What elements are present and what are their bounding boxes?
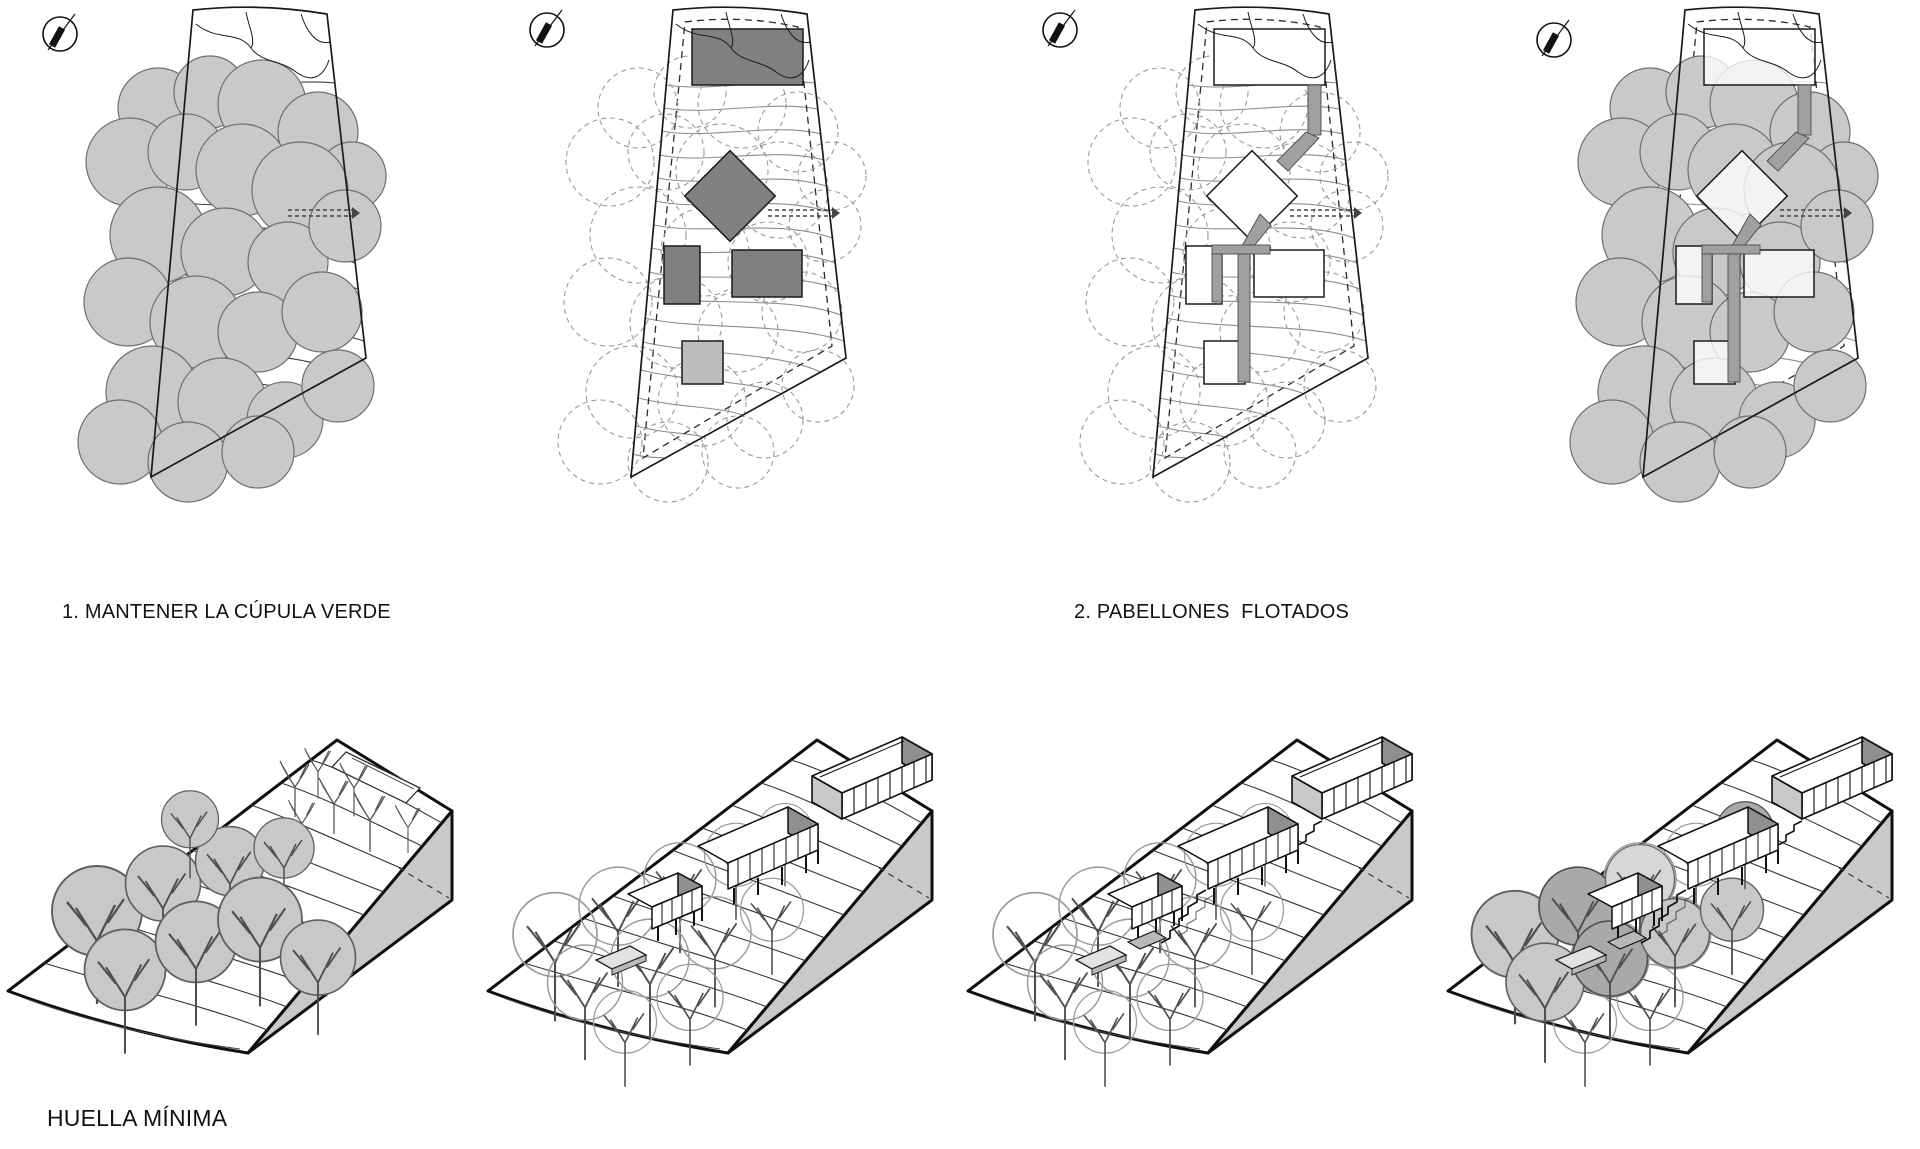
panel-3: 3. CONEXIONES SUTILES (960, 0, 1440, 1149)
site-plan-4-symbiosis (1440, 0, 1920, 560)
concept-sheet: 1. MANTENER LA CÚPULA VERDE (0, 0, 1920, 1149)
panel-2: 2. PABELLONES FLOTADOS (480, 0, 960, 1149)
axon-3-connections (960, 728, 1440, 1100)
panel-1: 1. MANTENER LA CÚPULA VERDE (0, 0, 480, 1149)
north-arrow-icon (43, 14, 77, 51)
north-arrow-icon (530, 10, 564, 47)
axon-1-existing-terrain (0, 728, 480, 1100)
pavilion-footprints (664, 29, 803, 304)
small-pavilion-footprint (682, 341, 723, 384)
panel-1-label: 1. MANTENER LA CÚPULA VERDE (62, 600, 391, 624)
site-plan-2-floating-pavilions (480, 0, 960, 560)
site-plan-1-green-canopy (0, 0, 480, 560)
pavilion-footprints (1186, 29, 1325, 304)
axon-2-floating-pavilions (480, 728, 960, 1100)
site-plan-3-subtle-connections (960, 0, 1440, 560)
north-arrow-icon (1537, 20, 1571, 57)
panel-4: 4. SIMBIOSIS CON LA NATURALEZA (1440, 0, 1920, 1149)
north-arrow-icon (1043, 10, 1077, 47)
axon-4-symbiosis (1440, 728, 1920, 1100)
sheet-caption: HUELLA MÍNIMA (47, 1105, 227, 1132)
